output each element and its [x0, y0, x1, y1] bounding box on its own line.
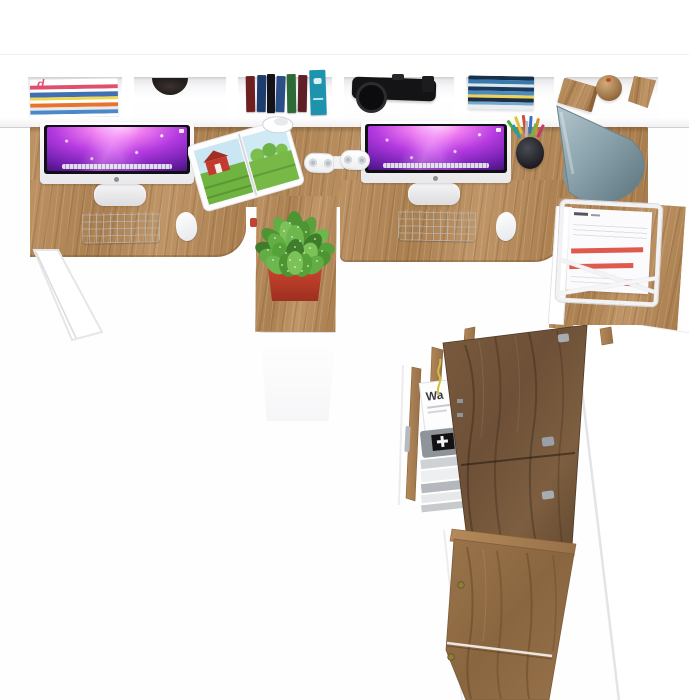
book-emblem: [313, 78, 321, 84]
door-knob: [458, 582, 464, 588]
open-magazine-group: [188, 116, 311, 212]
imac-right-screen: [368, 126, 504, 170]
book: [246, 76, 256, 112]
plant-pedestal-front: [258, 332, 338, 421]
socket: [308, 159, 316, 167]
imac-left-bezel: [44, 125, 190, 174]
imac-left-dock: [62, 164, 171, 169]
book: [287, 74, 297, 113]
socket: [344, 156, 352, 164]
door-hinge: [542, 436, 555, 446]
book-teal: [309, 70, 327, 116]
bottom-door-panel: [446, 539, 574, 700]
white-cabinet-top: [573, 325, 689, 700]
imac-right-dock: [383, 163, 489, 168]
door-hinge: [542, 490, 555, 499]
blue-magazine-stack: [468, 75, 535, 109]
paper-tray: [555, 199, 662, 306]
imac-right-menu-chip: [496, 128, 501, 132]
book: [298, 75, 308, 112]
door-knob: [448, 654, 454, 660]
socket: [358, 156, 366, 164]
shelf-top-edge: [0, 54, 689, 55]
tray-frame: [555, 199, 662, 306]
plant-foliage: [254, 210, 336, 279]
imac-right-stand: [408, 183, 460, 205]
apple-logo-right: [433, 176, 438, 181]
imac-left-screen: [47, 127, 187, 171]
power-strip-right: [340, 149, 371, 170]
lower-cabinet-assembly: Wa: [395, 325, 689, 700]
book: [267, 74, 275, 113]
imac-right: [361, 121, 511, 183]
bottom-cabinet-doors: [444, 529, 576, 700]
door-hinge: [558, 333, 570, 342]
camera-lens: [356, 82, 387, 113]
wood-decor-sphere: [596, 75, 622, 101]
apple-logo-left: [114, 177, 119, 182]
router-box-label: Wa: [425, 388, 444, 404]
open-magazine: [188, 116, 312, 216]
leg-panel: [34, 250, 102, 340]
imac-left-stand: [94, 184, 146, 206]
book: [257, 75, 267, 112]
camera: [348, 74, 440, 110]
keyboard-right: [398, 209, 477, 241]
cabinet-shelf-slat: [600, 327, 613, 345]
imac-left: [40, 122, 194, 184]
desk-leg-left: [26, 248, 110, 344]
furniture-render-scene: d: [0, 0, 689, 700]
socket: [323, 159, 331, 167]
power-strip-left: [304, 152, 337, 173]
imac-left-menu-chip: [179, 129, 184, 133]
imac-right-bezel: [365, 124, 507, 173]
book: [275, 76, 285, 112]
magazine-masthead-letter: d: [37, 77, 44, 91]
keyboard-left: [82, 211, 161, 243]
open-cabinet-door: [443, 325, 587, 561]
sphere-mark: [606, 78, 611, 82]
desk-lamp: [535, 100, 650, 205]
potted-plant: [240, 205, 350, 315]
